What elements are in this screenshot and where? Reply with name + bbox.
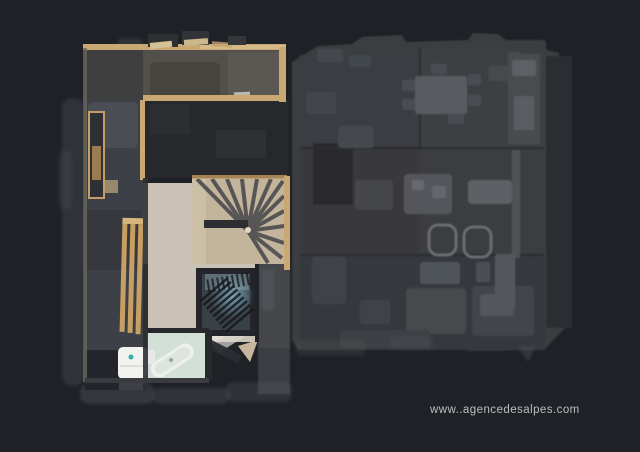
wall-dark bbox=[255, 264, 259, 342]
roof-bit bbox=[228, 36, 246, 45]
watermark-url: www..agencedesalpes.com bbox=[430, 404, 580, 416]
lit-area bbox=[83, 31, 290, 390]
furniture-blob bbox=[489, 66, 509, 81]
unlit-edge-band bbox=[546, 56, 572, 328]
corridor-dark-patch bbox=[85, 350, 119, 390]
unlit-column-highlight bbox=[262, 270, 274, 310]
bathroom-wall-right bbox=[205, 330, 212, 380]
pillow bbox=[412, 180, 424, 190]
furniture-blob bbox=[420, 262, 460, 284]
wall-left bbox=[83, 48, 87, 382]
bed bbox=[406, 288, 466, 334]
furniture-blob bbox=[349, 55, 371, 67]
chair bbox=[431, 64, 447, 74]
hall-floor-shade bbox=[85, 48, 143, 100]
furniture-blob bbox=[476, 262, 490, 282]
furniture-blob bbox=[338, 126, 374, 148]
hall-floor-patch bbox=[228, 52, 280, 96]
chair bbox=[402, 99, 415, 110]
furniture-blob bbox=[495, 254, 515, 310]
radiator-wood bbox=[92, 146, 101, 180]
bed bbox=[468, 180, 512, 204]
scan-noise-blob bbox=[58, 150, 72, 210]
upper-hall bbox=[85, 48, 283, 100]
landing-floor-left bbox=[143, 183, 192, 264]
scan-noise-blob bbox=[390, 336, 434, 350]
bathroom-wall-top bbox=[145, 328, 209, 333]
wall-strip bbox=[512, 150, 520, 258]
scan-noise-blob bbox=[152, 388, 230, 404]
bench-cap bbox=[122, 218, 143, 225]
chair bbox=[448, 114, 464, 124]
furniture-blob bbox=[312, 256, 346, 304]
floorplan-view: www..agencedesalpes.com bbox=[0, 0, 640, 452]
chair bbox=[468, 95, 481, 106]
scan-noise-blob bbox=[296, 340, 366, 356]
pillow bbox=[432, 186, 446, 198]
furniture-blob bbox=[355, 180, 393, 210]
spiral-stair-plank bbox=[192, 178, 206, 264]
wall-wood-right bbox=[279, 47, 286, 102]
chair bbox=[468, 74, 481, 85]
stair-center-post bbox=[245, 227, 251, 233]
furniture-blob bbox=[512, 60, 536, 76]
wall-wood-bottom bbox=[143, 95, 285, 101]
wall-wood-inner bbox=[140, 100, 145, 180]
scan-noise-blob bbox=[62, 98, 84, 386]
furniture-blob bbox=[306, 92, 336, 114]
dining-table bbox=[415, 76, 467, 114]
furniture-blob bbox=[514, 96, 534, 130]
furniture-blob bbox=[360, 300, 390, 324]
wall-divider bbox=[143, 178, 148, 390]
faucet-dot bbox=[169, 358, 173, 362]
radiator bbox=[89, 112, 104, 198]
furniture-blob bbox=[317, 49, 343, 62]
left-corridor bbox=[85, 100, 144, 390]
floorplan-canvas bbox=[0, 0, 640, 452]
stair-right-wall bbox=[284, 176, 290, 270]
chair bbox=[402, 80, 415, 91]
scan-noise-blob bbox=[226, 382, 292, 402]
washing-machine-body bbox=[118, 347, 147, 379]
spiral-staircase bbox=[192, 175, 290, 270]
stair-top-edge bbox=[192, 175, 287, 179]
stair-landing-bar bbox=[204, 220, 248, 228]
void-shadow bbox=[150, 104, 190, 134]
bench-slats bbox=[120, 218, 144, 335]
stair-void bbox=[313, 143, 353, 205]
power-led bbox=[129, 355, 134, 360]
wall-bottom bbox=[85, 378, 209, 383]
void-shadow bbox=[216, 130, 266, 158]
hall-floor-patch bbox=[150, 62, 220, 98]
furniture-blob bbox=[520, 40, 546, 54]
